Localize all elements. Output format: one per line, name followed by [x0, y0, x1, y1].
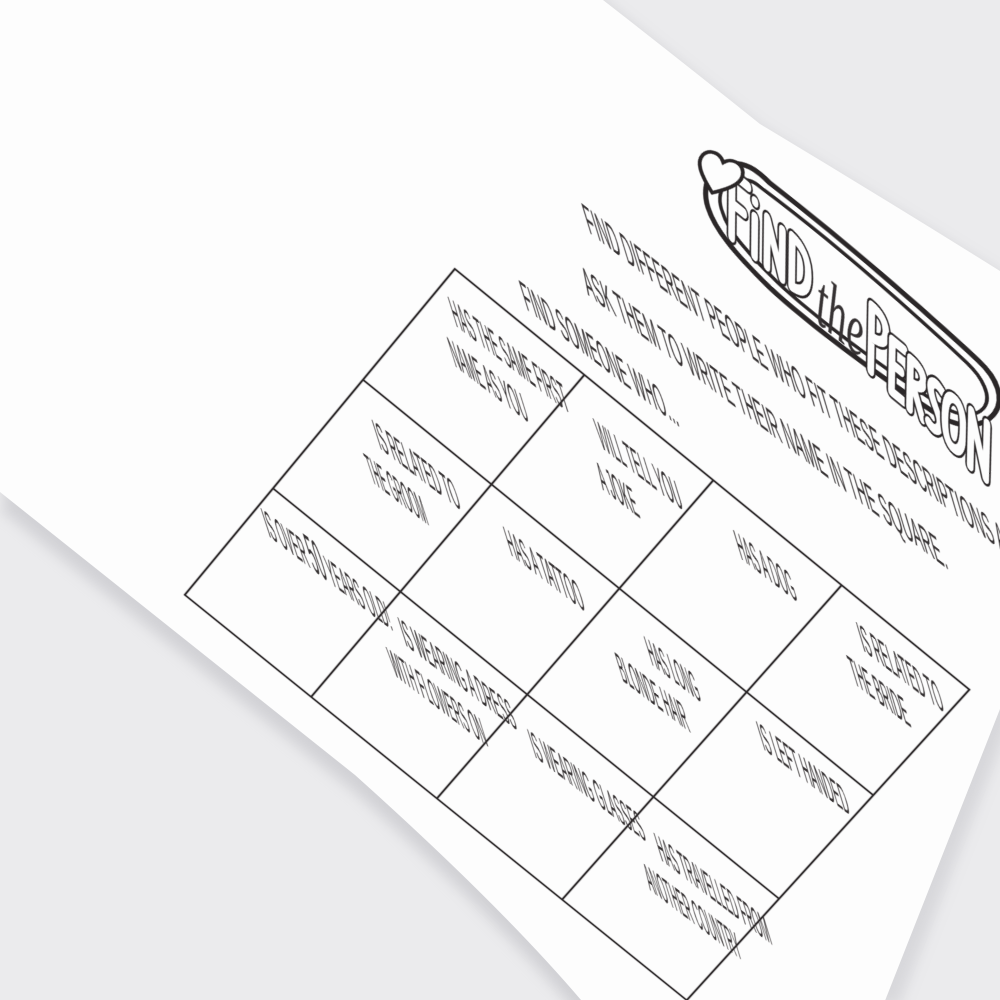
svg-text:HAS A DOG: HAS A DOG: [729, 520, 801, 613]
svg-text:HAS A TATTOO: HAS A TATTOO: [499, 516, 590, 622]
svg-text:IS OVER 50 YEARS OLD!: IS OVER 50 YEARS OLD!: [253, 486, 398, 644]
svg-text:IS WEARING GLASSES: IS WEARING GLASSES: [523, 719, 650, 851]
